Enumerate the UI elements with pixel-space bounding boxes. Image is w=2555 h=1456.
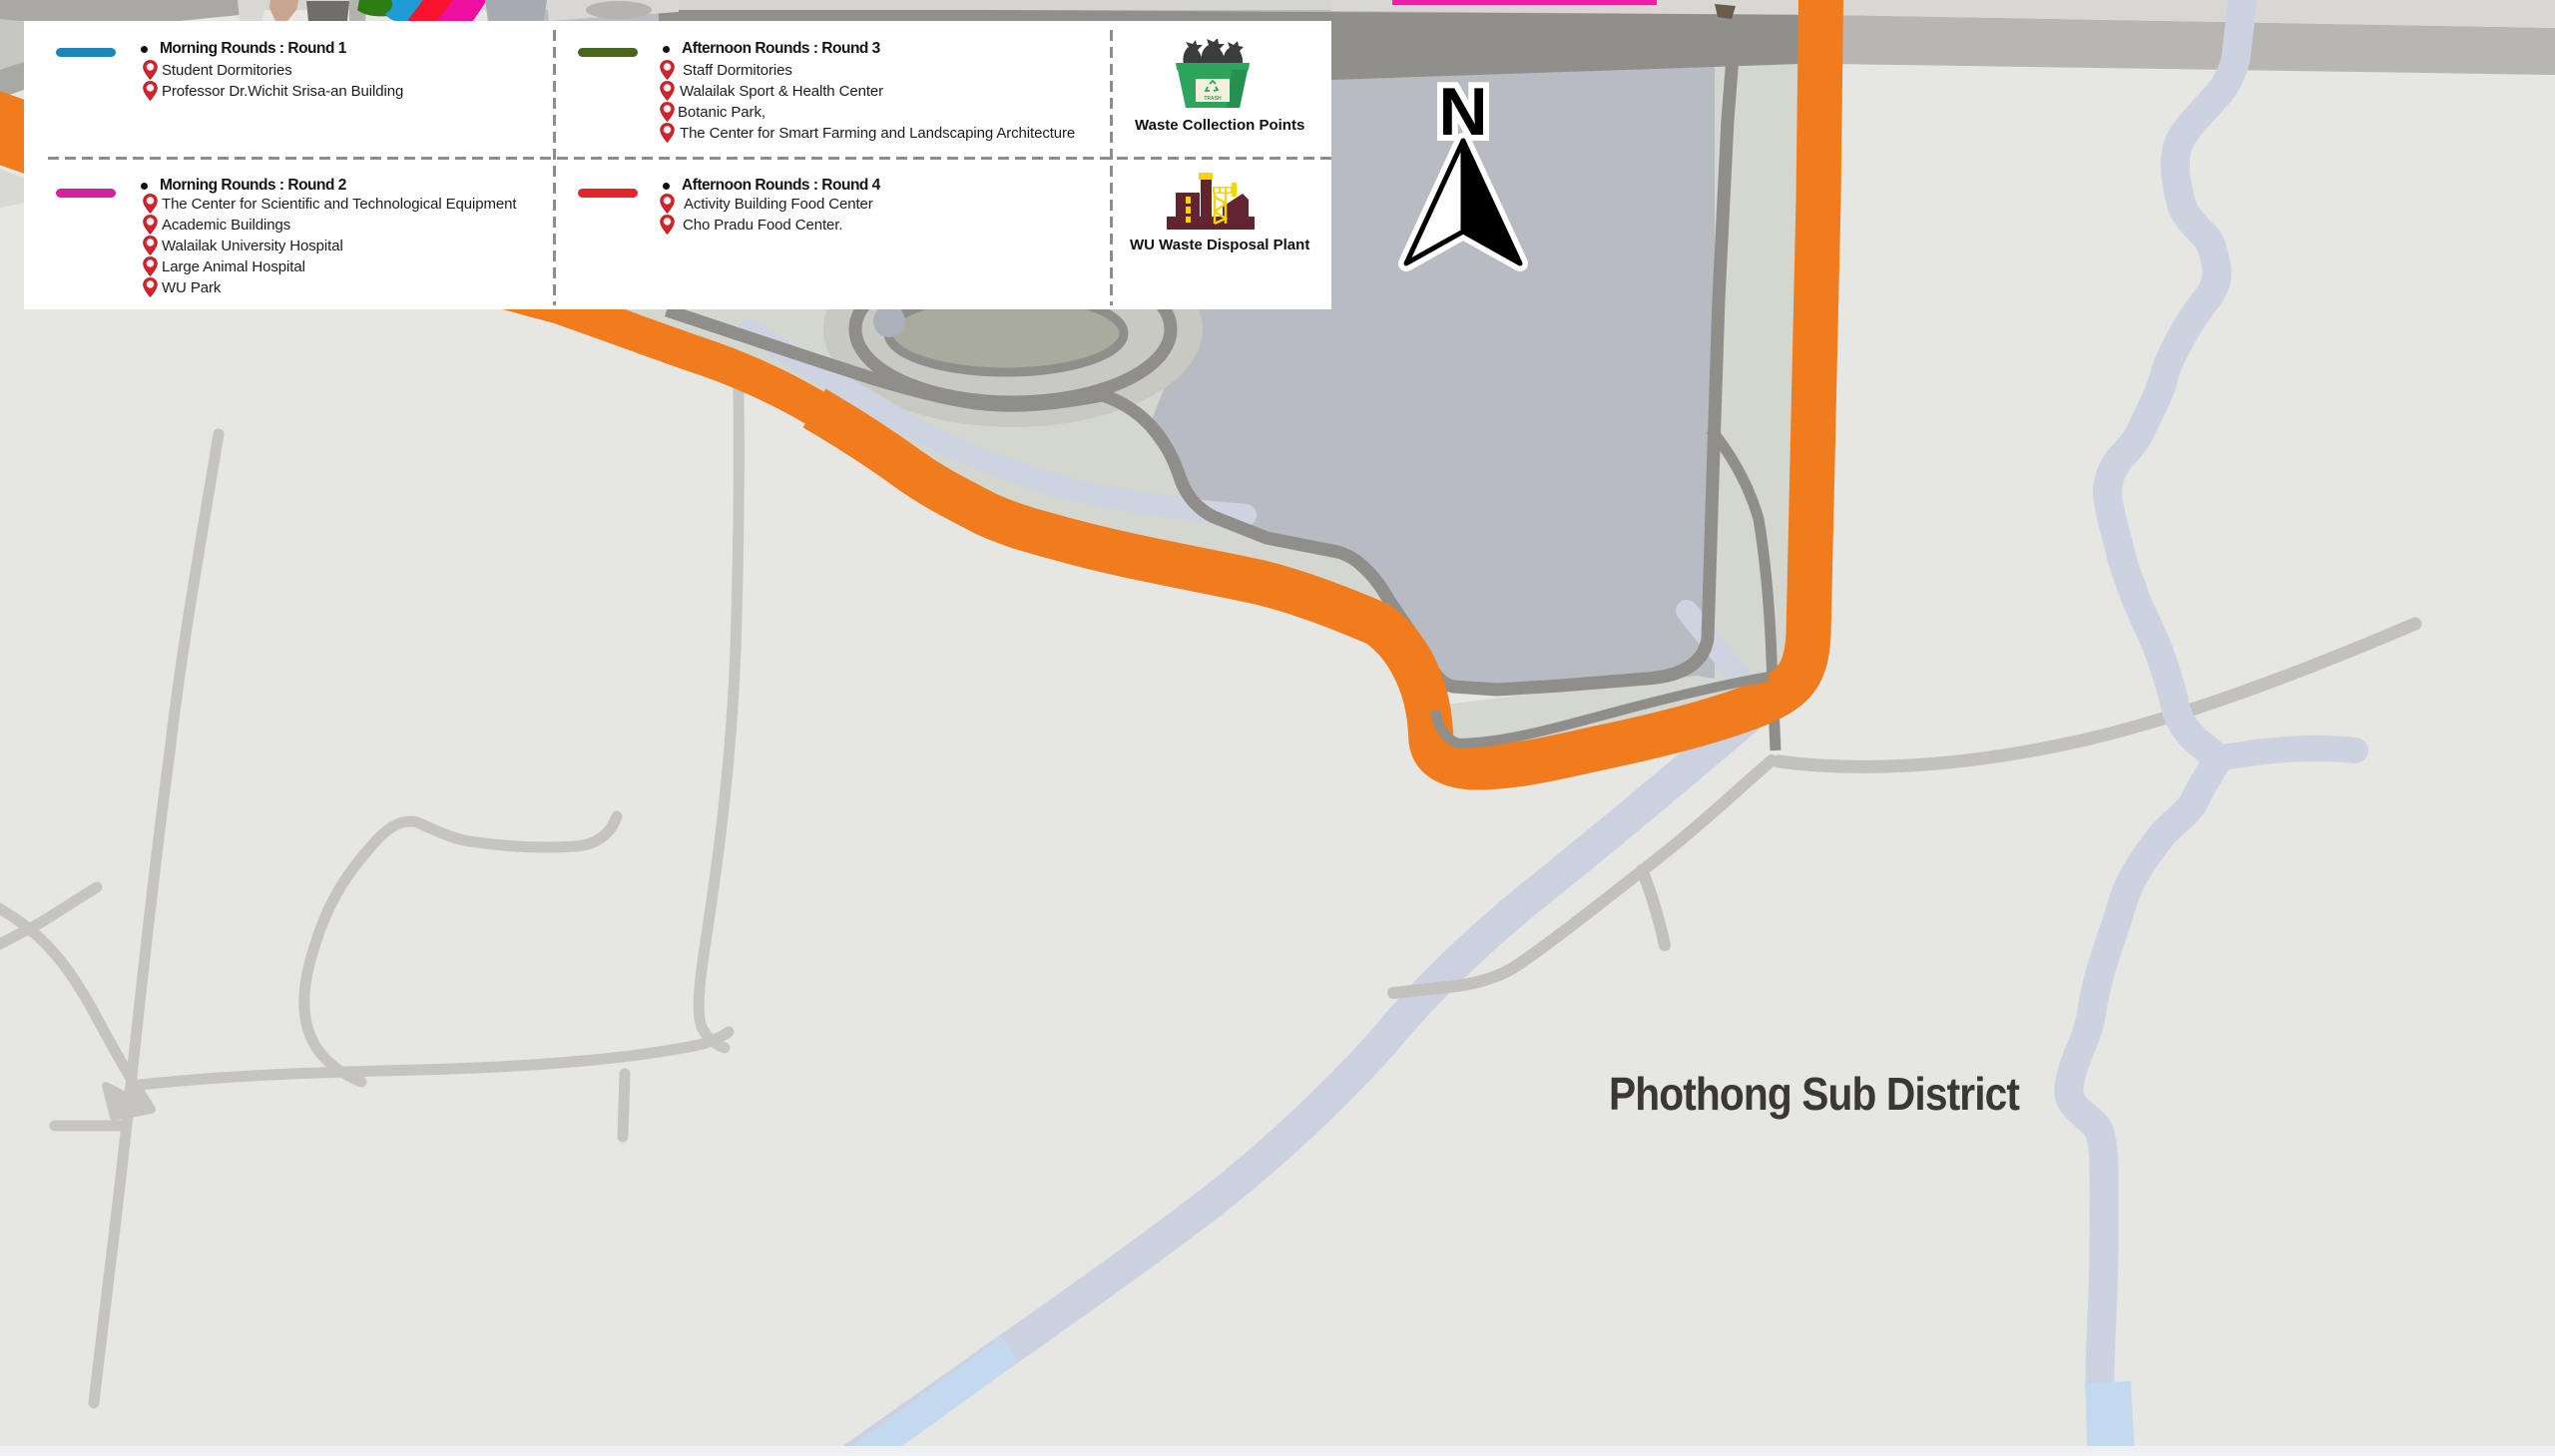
svg-text:TRASH: TRASH <box>1204 96 1222 102</box>
